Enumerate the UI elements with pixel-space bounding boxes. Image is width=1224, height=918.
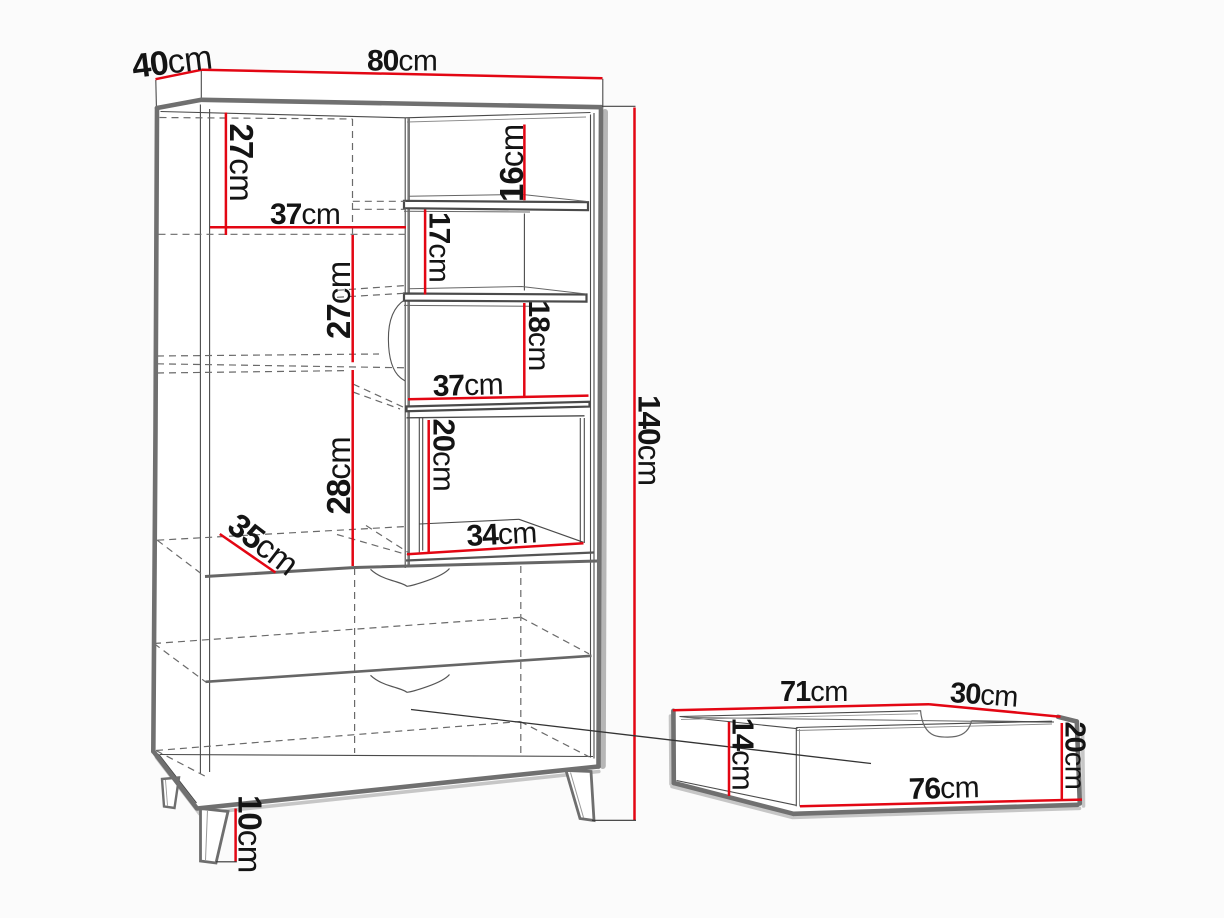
svg-text:76cm: 76cm (908, 771, 979, 806)
svg-text:14cm: 14cm (726, 718, 761, 791)
svg-text:27cm: 27cm (320, 261, 357, 339)
svg-text:140cm: 140cm (632, 395, 668, 486)
svg-text:20cm: 20cm (427, 419, 462, 492)
svg-text:28cm: 28cm (320, 437, 357, 515)
svg-text:80cm: 80cm (367, 45, 437, 78)
svg-text:18cm: 18cm (522, 301, 555, 371)
svg-text:17cm: 17cm (423, 212, 456, 282)
svg-text:16cm: 16cm (493, 124, 530, 202)
svg-text:37cm: 37cm (432, 368, 503, 403)
svg-text:71cm: 71cm (780, 676, 848, 708)
svg-text:27cm: 27cm (223, 124, 260, 202)
svg-text:34cm: 34cm (466, 516, 538, 553)
svg-text:10cm: 10cm (232, 795, 269, 873)
svg-text:37cm: 37cm (270, 198, 340, 231)
svg-text:30cm: 30cm (949, 677, 1019, 714)
svg-text:20cm: 20cm (1059, 722, 1091, 790)
